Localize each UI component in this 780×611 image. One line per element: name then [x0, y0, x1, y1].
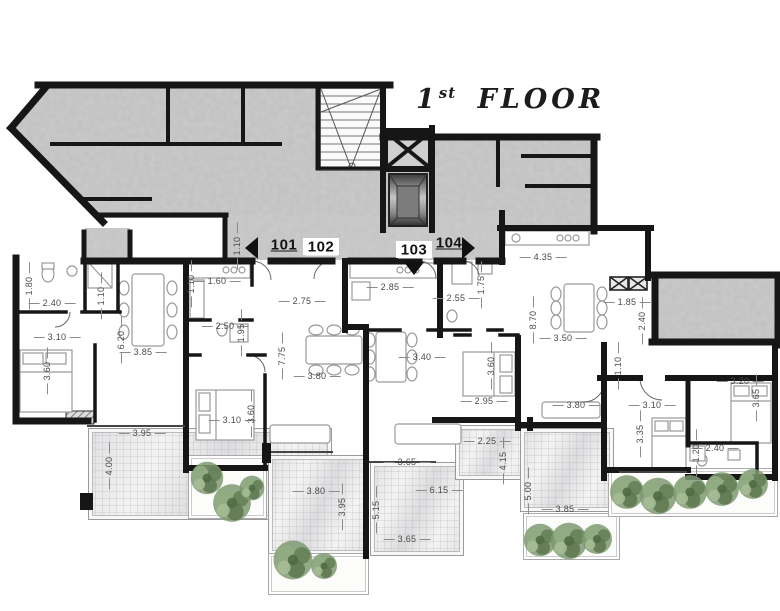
dimension-label: 1.10 — [186, 261, 196, 308]
dimension-label: 3.85 — [120, 347, 167, 357]
dimension-label: 3.95 — [337, 484, 347, 531]
dimension-label: 3.60 — [246, 391, 256, 438]
dimension-label: 2.40 — [29, 298, 76, 308]
dimension-label: 3.50 — [540, 333, 587, 343]
dimension-label: 1.75 — [476, 262, 486, 309]
dimension-label: 3.60 — [42, 348, 52, 395]
dimension-label: 8.70 — [528, 297, 538, 344]
dimension-label: 3.10 — [629, 400, 676, 410]
dimension-label: 1.60 — [194, 276, 241, 286]
dimension-label: 7.75 — [277, 333, 287, 380]
dimension-label: 3.95 — [119, 428, 166, 438]
plan-drawing — [0, 0, 780, 611]
dimension-label: 1.10 — [96, 273, 106, 320]
bed-104a — [652, 418, 686, 472]
washer-icon — [610, 277, 647, 290]
dimension-label: 2.85 — [367, 282, 414, 292]
title-number: 1 — [416, 84, 439, 115]
dimension-label: 6.15 — [416, 485, 463, 495]
floor-plan: 1st FLOOR 101 102 103 104 1.80 2.40 1.10… — [0, 0, 780, 611]
dimension-label: 3.10 — [34, 332, 81, 342]
dimension-label: 3.65 — [751, 375, 761, 422]
dimension-label: 1.95 — [236, 310, 246, 357]
title-word: FLOOR — [478, 84, 606, 115]
dimension-label: 2.55 — [433, 293, 480, 303]
staircase — [320, 88, 382, 170]
trees — [191, 462, 768, 580]
dimension-label: 5.15 — [371, 487, 381, 534]
dimension-label: 4.15 — [498, 438, 508, 485]
dimension-label: 3.35 — [635, 411, 645, 458]
unit-label-103: 103 — [398, 242, 431, 259]
dining-set-101 — [119, 274, 177, 346]
dimension-label: 4.35 — [520, 252, 567, 262]
title-ordinal: st — [439, 84, 456, 102]
dimension-label: 3.85 — [542, 504, 589, 514]
dimension-label: 4.00 — [104, 443, 114, 490]
kitchen-104 — [505, 231, 589, 245]
unit-label-104: 104 — [436, 235, 463, 252]
dining-set-102 — [306, 325, 362, 375]
dimension-label: 3.60 — [486, 343, 496, 390]
dimension-label: 3.65 — [384, 457, 431, 467]
dimension-label: 1.20 — [691, 430, 701, 477]
dimension-label: 3.65 — [384, 534, 431, 544]
page-title: 1st FLOOR — [416, 84, 605, 115]
sofa-102 — [270, 425, 330, 443]
sofa-103 — [395, 424, 461, 444]
unit-label-102: 102 — [305, 239, 338, 256]
dimension-label: 2.75 — [279, 296, 326, 306]
dimension-label: 3.80 — [293, 486, 340, 496]
dimension-label: 3.80 — [553, 400, 600, 410]
dimension-label: 5.00 — [523, 468, 533, 515]
dimension-label: 1.10 — [613, 343, 623, 390]
dimension-label: 2.95 — [461, 396, 508, 406]
dimension-label: 2.40 — [637, 298, 647, 345]
dimension-label: 3.80 — [294, 371, 341, 381]
dimension-label: 3.40 — [399, 352, 446, 362]
unit-label-101: 101 — [271, 237, 298, 254]
dimension-label: 1.10 — [232, 223, 242, 270]
dining-set-104 — [551, 284, 607, 332]
elevator-car — [389, 174, 427, 226]
